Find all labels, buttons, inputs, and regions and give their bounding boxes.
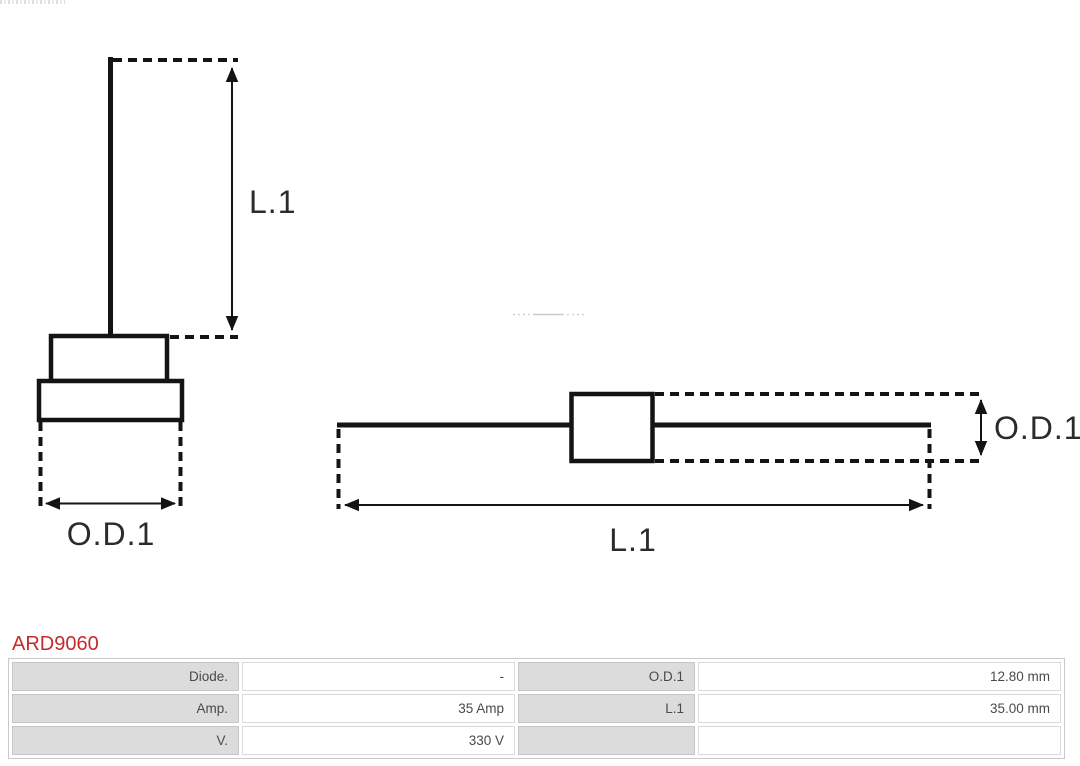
- table-row: Diode. - O.D.1 12.80 mm: [12, 662, 1061, 691]
- technical-drawing: L.1 O.D.1 O.D.1 L.1: [0, 0, 1080, 620]
- product-code: ARD9060: [12, 633, 99, 656]
- diagram-axial-view: O.D.1 L.1: [337, 394, 1080, 558]
- spec-value: 35.00 mm: [698, 694, 1061, 723]
- spec-value: 35 Amp: [242, 694, 515, 723]
- diode-body-upper: [51, 336, 167, 381]
- spec-value: [698, 726, 1061, 755]
- spec-table: Diode. - O.D.1 12.80 mm Amp. 35 Amp L.1 …: [8, 658, 1065, 759]
- spec-value: 330 V: [242, 726, 515, 755]
- spec-label: [518, 726, 695, 755]
- spec-label: L.1: [518, 694, 695, 723]
- diode-body: [572, 394, 653, 461]
- product-diagram-page: L.1 O.D.1 O.D.1 L.1 ARD9060: [0, 0, 1080, 766]
- spec-label: V.: [12, 726, 239, 755]
- spec-value: 12.80 mm: [698, 662, 1061, 691]
- diameter-dimension-label: O.D.1: [67, 516, 156, 552]
- diode-body-lower: [39, 381, 182, 420]
- spec-label: O.D.1: [518, 662, 695, 691]
- length-dimension-label: L.1: [249, 184, 296, 220]
- spec-label: Amp.: [12, 694, 239, 723]
- spec-label: Diode.: [12, 662, 239, 691]
- diameter-dimension-label: O.D.1: [994, 410, 1080, 446]
- diagram-side-view: L.1 O.D.1: [39, 57, 296, 552]
- table-row: V. 330 V: [12, 726, 1061, 755]
- table-row: Amp. 35 Amp L.1 35.00 mm: [12, 694, 1061, 723]
- length-dimension-label: L.1: [609, 522, 656, 558]
- spec-value: -: [242, 662, 515, 691]
